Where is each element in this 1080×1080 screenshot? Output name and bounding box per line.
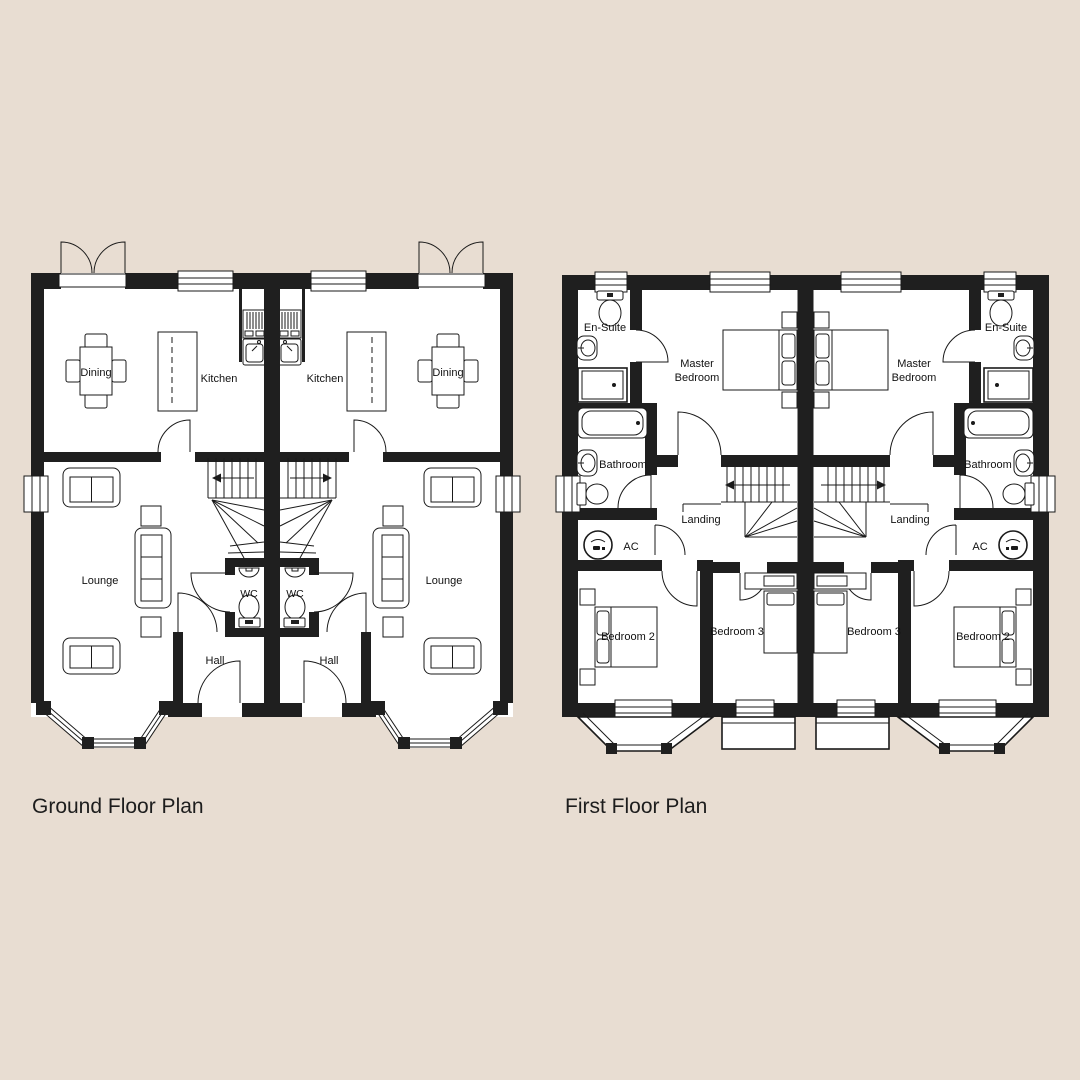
party-wall: [798, 275, 814, 717]
room-label-ensuite: En-Suite: [584, 322, 626, 334]
single-bed-icon: [764, 591, 797, 653]
ground-floor-left-unit: [24, 242, 266, 749]
room-label-bathroom: Bathroom: [599, 459, 647, 471]
room-label-ensuite: En-Suite: [985, 322, 1027, 334]
room-label-dining: Dining: [80, 367, 111, 379]
room-label-dining: Dining: [432, 367, 463, 379]
first-floor-right-unit: [806, 272, 1056, 754]
ac-cylinder-icon: [584, 531, 612, 559]
basin-icon: [577, 336, 597, 360]
porch-outline: [722, 717, 795, 749]
sofa-icon: [135, 528, 171, 608]
first-floor-plan-title: First Floor Plan: [565, 795, 707, 818]
toilet-icon: [577, 483, 608, 505]
room-label-hall: Hall: [320, 655, 339, 667]
room-label-kitchen: Kitchen: [307, 373, 344, 385]
room-label-landing: Landing: [890, 514, 929, 526]
room-label-bedroom2: Bedroom 2: [956, 631, 1010, 643]
bath-icon: [578, 408, 647, 438]
kitchen-sink-icon: [243, 310, 266, 365]
room-label-ac: AC: [972, 541, 987, 553]
first-floor-left-unit: [556, 272, 806, 754]
room-label-master-bedroom: Bedroom: [675, 372, 720, 384]
room-label-bedroom2: Bedroom 2: [601, 631, 655, 643]
party-wall: [264, 273, 280, 717]
room-label-hall: Hall: [206, 655, 225, 667]
window-icon: [556, 476, 580, 512]
window-icon: [710, 272, 770, 292]
ground-floor-plan-title: Ground Floor Plan: [32, 795, 204, 818]
window-icon: [178, 271, 233, 291]
shower-icon: [578, 368, 627, 402]
floorplan-sheet: Dining Dining Kitchen Kitchen Lounge Lou…: [0, 0, 1080, 1080]
kitchen-island-icon: [158, 332, 197, 411]
room-label-lounge: Lounge: [426, 575, 463, 587]
room-label-bedroom3: Bedroom 3: [847, 626, 901, 638]
room-label-landing: Landing: [681, 514, 720, 526]
ground-floor-right-unit: [278, 242, 520, 749]
wardrobe-icon: [745, 573, 797, 589]
room-label-master-bedroom: Master: [897, 358, 931, 370]
toilet-icon: [597, 291, 623, 326]
window-icon: [595, 272, 627, 292]
room-label-bedroom3: Bedroom 3: [710, 626, 764, 638]
room-label-bathroom: Bathroom: [964, 459, 1012, 471]
room-label-kitchen: Kitchen: [201, 373, 238, 385]
french-doors-icon: [59, 242, 126, 287]
room-label-wc: WC: [240, 588, 258, 600]
sofa-icon: [63, 468, 120, 507]
basin-icon: [577, 450, 597, 476]
room-label-master-bedroom: Bedroom: [892, 372, 937, 384]
sofa-icon: [63, 638, 120, 674]
bay-window-icon: [578, 713, 713, 754]
window-icon: [24, 476, 48, 512]
room-label-ac: AC: [623, 541, 638, 553]
room-label-lounge: Lounge: [82, 575, 119, 587]
room-label-wc: WC: [286, 588, 304, 600]
floorplan-drawing: Dining Dining Kitchen Kitchen Lounge Lou…: [0, 0, 1080, 1080]
room-label-master-bedroom: Master: [680, 358, 714, 370]
